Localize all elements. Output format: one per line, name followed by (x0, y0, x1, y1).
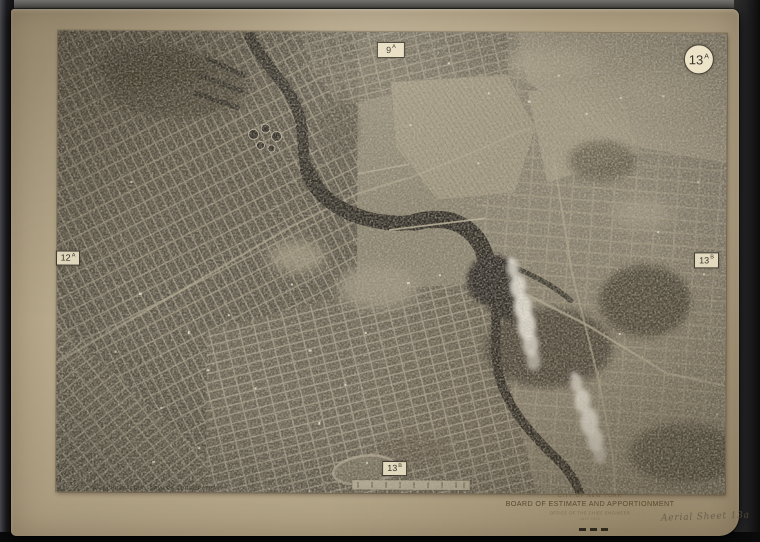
plate-letter: A (704, 53, 709, 60)
caption-date: JULY 1924 (536, 517, 644, 519)
edge-tag-bottom: 13 B (382, 461, 407, 476)
scale-dashes (579, 528, 623, 531)
caption-city: CITY OF NEW YORK (515, 493, 665, 497)
scale-dash (590, 528, 597, 531)
scale-dash (579, 528, 586, 531)
edge-tag-right: 13 B (694, 252, 719, 268)
aerial-photo: 13 A 9 A 12 A 13 B 13 B (56, 31, 727, 495)
scanned-plate-stage: 13 A 9 A 12 A 13 B 13 B CITY OF NEW (0, 0, 760, 542)
photo-credit: FAIRCHILD AERIAL CAMERA CORPORATION (93, 486, 220, 492)
caption-office: OFFICE OF THE CHIEF ENGINEER (527, 511, 653, 514)
plate-badge: 13 A (684, 44, 714, 74)
mount-board: 13 A 9 A 12 A 13 B 13 B CITY OF NEW (11, 9, 739, 536)
caption-title: BOARD OF ESTIMATE AND APPORTIONMENT (482, 500, 698, 508)
aerial-photo-image (56, 31, 727, 495)
plate-number: 13 (689, 53, 704, 66)
scale-dash (601, 528, 608, 531)
edge-tag-left: 12 A (56, 251, 80, 266)
edge-tag-top: 9 A (377, 42, 405, 58)
